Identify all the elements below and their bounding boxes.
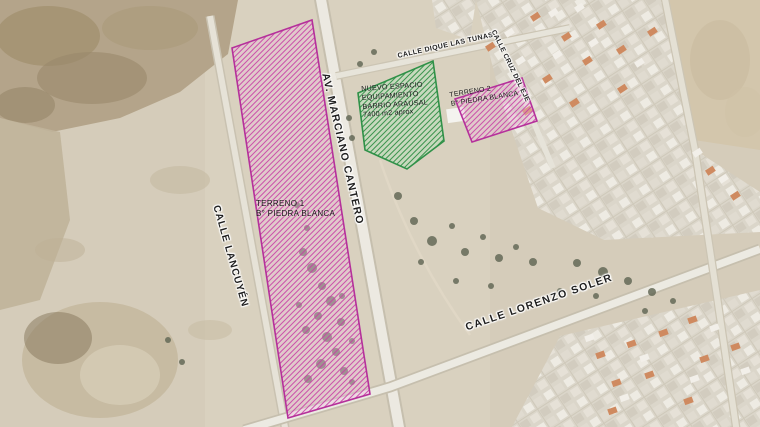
aerial-basemap [0,0,760,427]
parcel-label-nuevo-espacio: NUEVO ESPACIO EQUIPAMIENTO BARRIO ARAUSA… [361,80,429,120]
terreno-1-name: TERRENO 1 [256,199,335,209]
parcel-label-terreno-1: TERRENO 1 B° PIEDRA BLANCA [256,199,335,219]
terreno-1-barrio: B° PIEDRA BLANCA [256,209,335,219]
aerial-map: AV. MARCIANO CANTERO CALLE LANCUYÉN CALL… [0,0,760,427]
